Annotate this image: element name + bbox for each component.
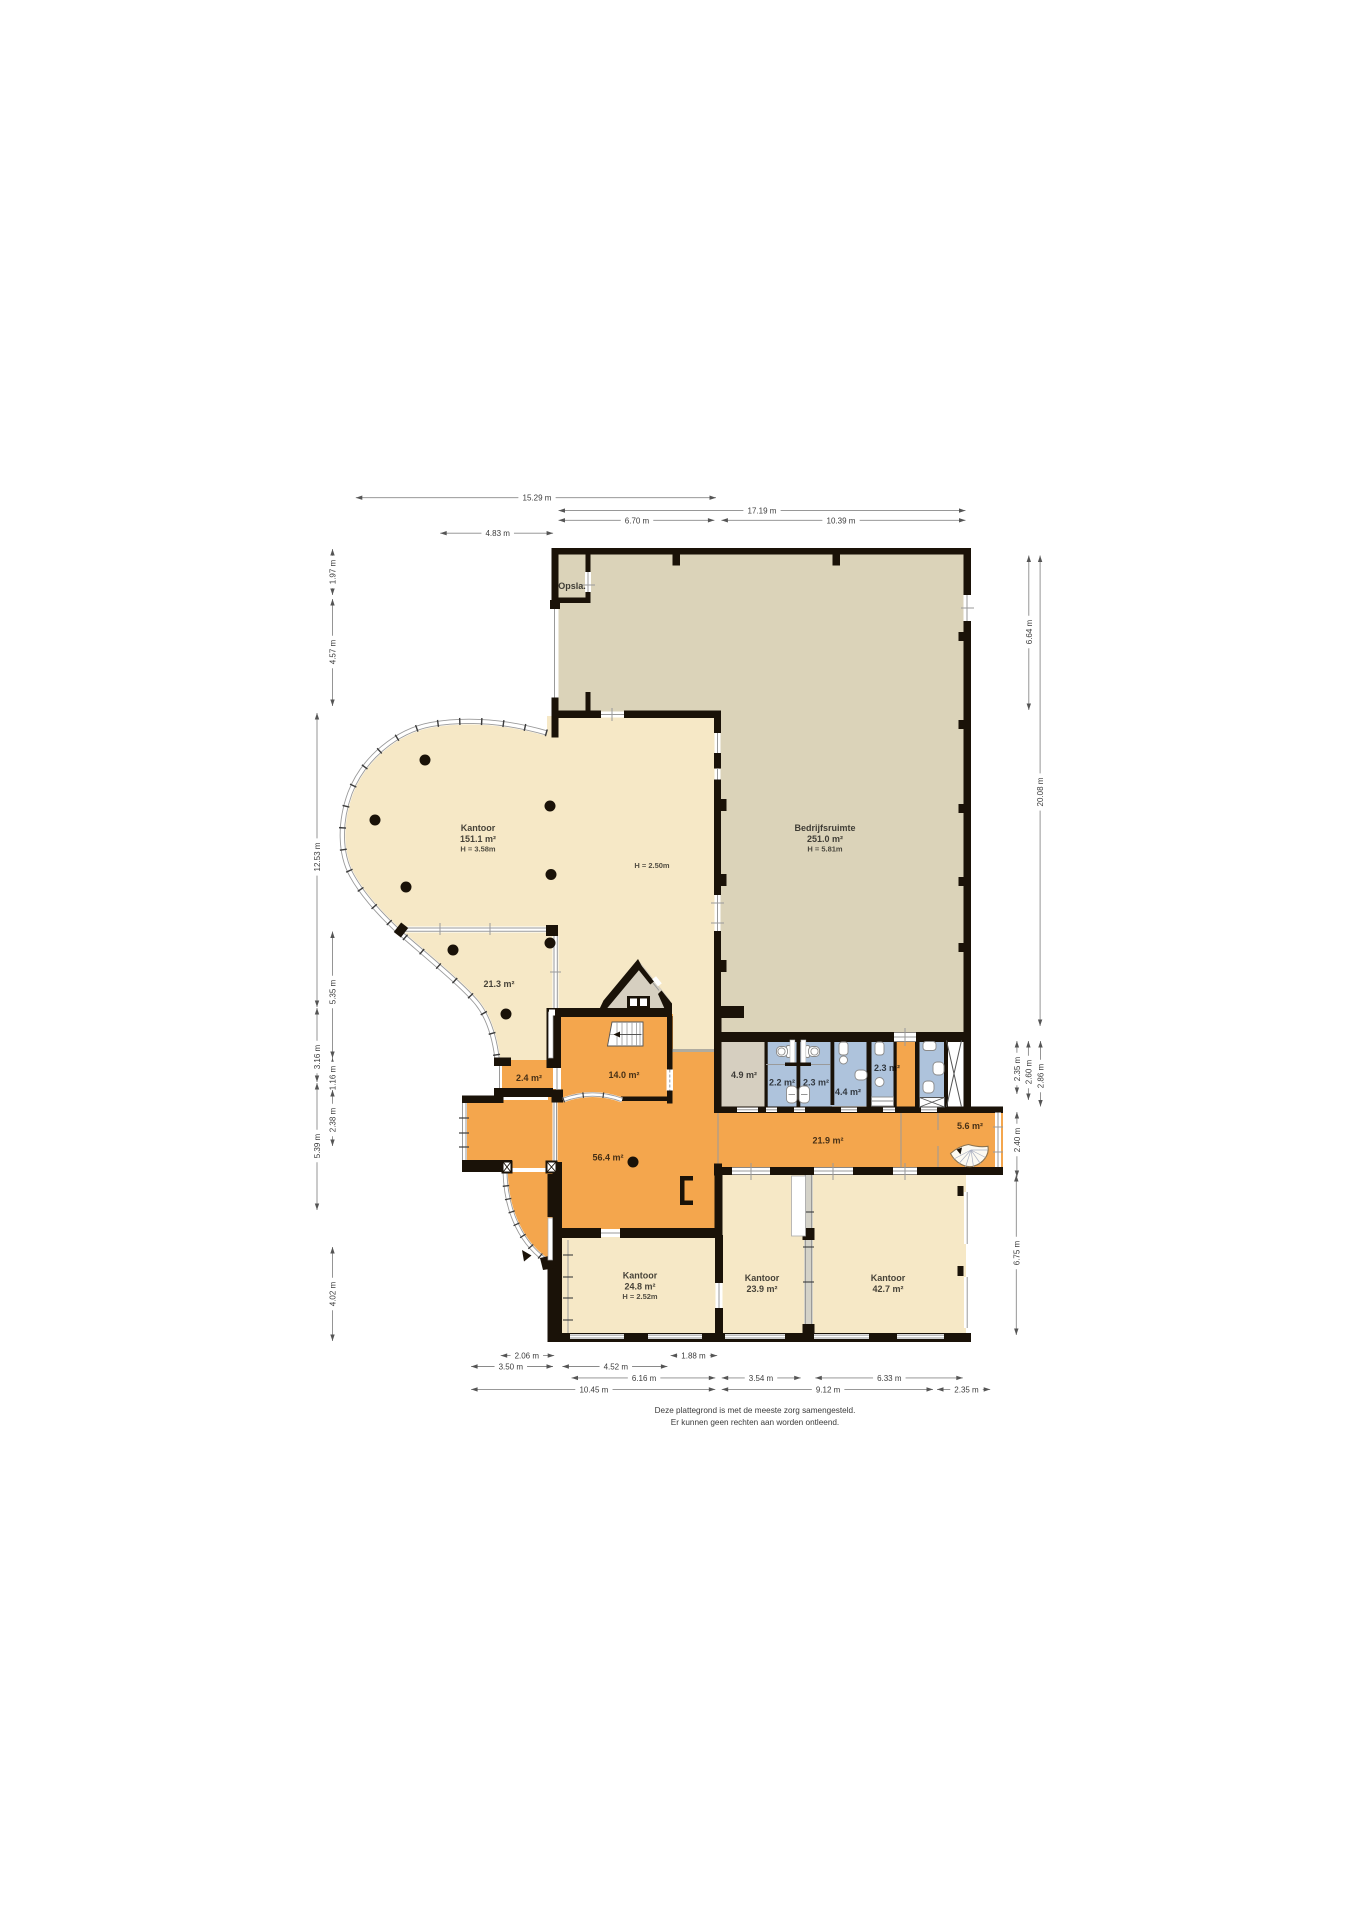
svg-text:Kantoor: Kantoor [623,1271,658,1281]
svg-text:4.52 m: 4.52 m [604,1363,629,1372]
svg-text:2.3 m²: 2.3 m² [874,1063,900,1073]
svg-text:6.64 m: 6.64 m [1025,619,1034,644]
svg-text:24.8 m²: 24.8 m² [624,1282,655,1292]
svg-text:12.53 m: 12.53 m [313,842,322,871]
svg-text:23.9 m²: 23.9 m² [746,1284,777,1294]
svg-text:2.4 m²: 2.4 m² [516,1073,542,1083]
svg-text:21.9 m²: 21.9 m² [812,1136,843,1146]
svg-text:H = 5.81m: H = 5.81m [807,845,843,854]
svg-text:5.35 m: 5.35 m [329,979,338,1004]
svg-text:2.86 m: 2.86 m [1037,1063,1046,1088]
svg-text:3.50 m: 3.50 m [499,1363,524,1372]
svg-text:5.39 m: 5.39 m [313,1133,322,1158]
svg-text:Deze plattegrond is met de mee: Deze plattegrond is met de meeste zorg s… [655,1406,856,1415]
svg-text:2.35 m: 2.35 m [954,1385,979,1394]
svg-text:6.75 m: 6.75 m [1012,1240,1021,1265]
svg-text:42.7 m²: 42.7 m² [872,1284,903,1294]
svg-text:6.70 m: 6.70 m [625,516,650,525]
svg-text:2.35 m: 2.35 m [1013,1056,1022,1081]
svg-text:H = 3.58m: H = 3.58m [460,845,496,854]
svg-text:14.0 m²: 14.0 m² [608,1070,639,1080]
svg-text:Bedrijfsruimte: Bedrijfsruimte [794,823,855,833]
svg-text:21.3 m²: 21.3 m² [483,979,514,989]
svg-text:1.97 m: 1.97 m [329,559,338,584]
svg-text:6.33 m: 6.33 m [877,1374,902,1383]
svg-text:Er kunnen geen rechten aan wor: Er kunnen geen rechten aan worden ontlee… [671,1418,839,1427]
svg-text:3.16 m: 3.16 m [313,1044,322,1069]
svg-text:2.06 m: 2.06 m [515,1352,540,1361]
svg-text:4.02 m: 4.02 m [329,1281,338,1306]
svg-text:Opsla.: Opsla. [558,581,586,591]
svg-text:15.29 m: 15.29 m [523,494,552,503]
svg-text:Kantoor: Kantoor [745,1273,780,1283]
svg-text:20.08 m: 20.08 m [1036,777,1045,806]
svg-text:4.83 m: 4.83 m [485,529,510,538]
svg-text:2.2 m²: 2.2 m² [769,1078,795,1088]
svg-text:2.38 m: 2.38 m [329,1107,338,1132]
svg-text:9.12 m: 9.12 m [816,1385,841,1394]
svg-text:10.45 m: 10.45 m [579,1385,608,1394]
svg-text:4.4 m²: 4.4 m² [835,1087,861,1097]
svg-text:4.57 m: 4.57 m [329,639,338,664]
svg-text:56.4 m²: 56.4 m² [592,1153,623,1163]
svg-text:Kantoor: Kantoor [871,1273,906,1283]
svg-text:H = 2.52m: H = 2.52m [622,1292,658,1301]
svg-text:2.3 m²: 2.3 m² [803,1078,829,1088]
svg-text:5.6 m²: 5.6 m² [957,1121,983,1131]
svg-text:6.16 m: 6.16 m [632,1374,657,1383]
svg-text:17.19 m: 17.19 m [748,507,777,516]
svg-text:Kantoor: Kantoor [461,823,496,833]
svg-text:1.88 m: 1.88 m [681,1352,706,1361]
svg-text:1.16 m: 1.16 m [329,1065,338,1090]
svg-text:251.0 m²: 251.0 m² [807,834,843,844]
svg-text:2.60 m: 2.60 m [1024,1059,1033,1084]
svg-text:H = 2.50m: H = 2.50m [634,861,670,870]
svg-text:2.40 m: 2.40 m [1013,1127,1022,1152]
svg-text:3.54 m: 3.54 m [749,1374,774,1383]
svg-text:151.1 m²: 151.1 m² [460,834,496,844]
svg-text:10.39 m: 10.39 m [827,516,856,525]
svg-text:4.9 m²: 4.9 m² [731,1070,757,1080]
